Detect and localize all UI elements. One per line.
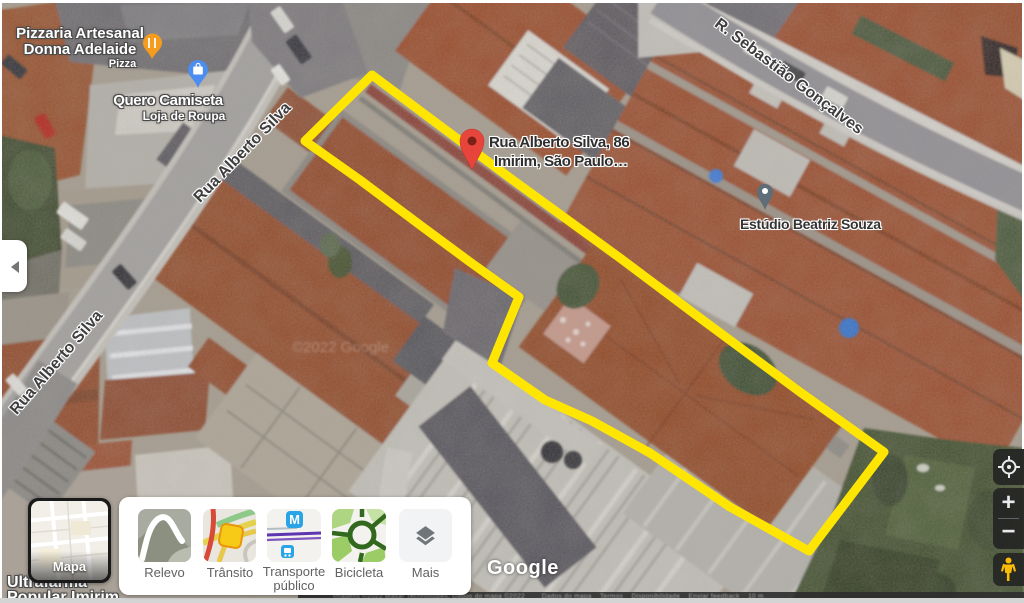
- svg-text:M: M: [289, 512, 300, 527]
